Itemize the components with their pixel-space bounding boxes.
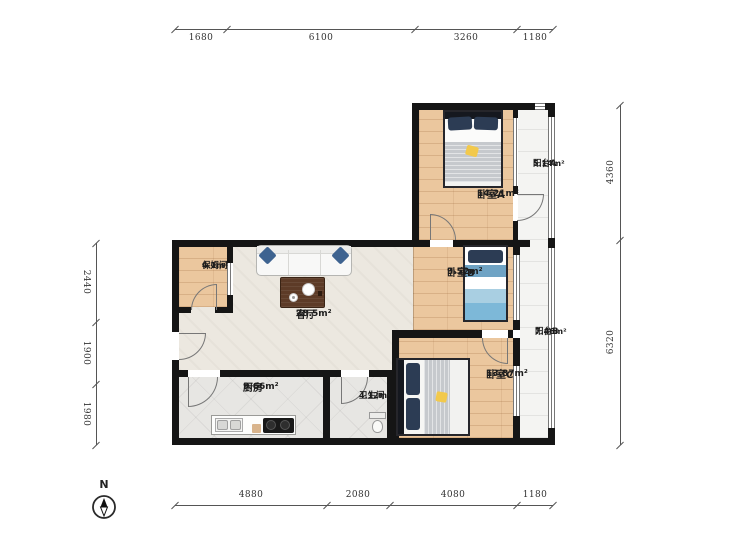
room-area: 9.66m²	[243, 382, 279, 394]
room-area: 7.46m²	[535, 327, 567, 337]
bed-pillow	[406, 398, 420, 430]
wall	[513, 221, 518, 240]
wall	[513, 338, 520, 366]
bed-blanket-stripe	[465, 289, 506, 303]
balcony-b-floor	[520, 240, 548, 438]
wall	[172, 438, 555, 445]
wall	[172, 360, 179, 445]
table-plate-dot	[292, 296, 295, 299]
wall	[220, 370, 330, 377]
floor-edge	[413, 247, 414, 330]
sofa	[256, 245, 352, 276]
sink-basin	[230, 420, 241, 430]
toilet-bowl	[372, 420, 383, 433]
dimension-line-right	[620, 105, 621, 445]
bed-sheet	[445, 182, 501, 186]
dimension-line-bottom	[175, 505, 553, 506]
dim-label: 1680	[189, 33, 214, 43]
wall	[508, 330, 513, 338]
compass-icon	[91, 494, 117, 520]
wall	[392, 330, 482, 338]
window	[548, 117, 555, 238]
sofa-seam	[320, 250, 321, 275]
room-area: 4.1m²	[202, 261, 228, 271]
wall	[412, 103, 419, 247]
window	[513, 118, 518, 186]
room-area: 4.12m²	[359, 391, 391, 401]
toilet-tank	[369, 412, 386, 419]
bed	[443, 110, 503, 188]
sofa-seam	[288, 250, 289, 275]
dim-label: 4360	[606, 160, 616, 185]
bed-blanket-stripe	[465, 303, 506, 320]
wall	[513, 416, 520, 438]
sink-basin	[217, 420, 228, 430]
dimension-line-left	[96, 243, 97, 445]
wall	[419, 240, 430, 247]
wall	[179, 307, 191, 313]
bed-pillow	[448, 116, 473, 130]
balcony-a-floor	[518, 110, 548, 240]
room-area: 14.21m²	[477, 189, 519, 201]
dim-label: 1180	[523, 490, 548, 500]
bed	[463, 245, 508, 322]
dim-label: 1900	[81, 341, 91, 366]
dimension-line-top	[175, 29, 553, 30]
table-plate	[302, 283, 315, 296]
wall	[179, 370, 188, 377]
dim-label: 4880	[239, 490, 264, 500]
window	[535, 103, 545, 110]
wall	[215, 307, 233, 313]
dim-label: 1180	[523, 33, 548, 43]
bedroom-a-door-leaf	[430, 214, 431, 240]
stove-burner	[266, 420, 276, 430]
room-area: 13.87m²	[486, 369, 528, 381]
room-area: 9.52m²	[447, 267, 483, 279]
dim-label: 2080	[346, 490, 371, 500]
wall	[172, 240, 179, 332]
bed-pillow	[474, 117, 498, 131]
wall	[369, 370, 394, 377]
room-area: 5.14m²	[533, 159, 565, 169]
bed-sheet	[450, 360, 468, 434]
kitchen-counter	[211, 415, 296, 435]
wall	[513, 247, 520, 255]
dim-label: 6100	[309, 33, 334, 43]
bedroom-c-door-leaf	[507, 338, 508, 364]
coffee-table	[280, 277, 325, 308]
bed-cushion	[435, 391, 448, 403]
wall	[330, 370, 341, 377]
dim-label: 3260	[454, 33, 479, 43]
bed-pillow	[406, 363, 420, 395]
dim-label: 4080	[441, 490, 466, 500]
dim-label: 2440	[81, 270, 91, 295]
window	[513, 255, 520, 320]
balcony-a-door-leaf	[517, 194, 544, 195]
nanny-door-leaf	[216, 284, 217, 310]
wall	[548, 238, 555, 248]
stove	[263, 418, 294, 433]
room-area: 28.5m²	[296, 309, 332, 321]
bed-pillow	[468, 250, 503, 263]
wall	[412, 103, 555, 110]
table-knob	[318, 291, 322, 296]
bed-headboard	[398, 360, 404, 434]
dim-label: 6320	[606, 330, 616, 355]
cutting-board	[252, 424, 261, 433]
entrance-door-leaf	[179, 333, 206, 334]
dim-label: 1980	[81, 402, 91, 427]
table-plate	[289, 293, 298, 302]
compass-north-label: N	[99, 478, 108, 491]
bed	[396, 358, 470, 436]
kitchen-sink	[215, 418, 243, 432]
kitchen-door-leaf	[188, 377, 189, 407]
wall	[548, 103, 555, 117]
wall	[513, 110, 518, 118]
wall	[517, 240, 530, 247]
stove-burner	[280, 420, 290, 430]
floor-plan: 客厅 28.5m² 保姆间 4.1m² 厨房 9.66m² 卫生间 4.12m²…	[0, 0, 729, 547]
wall	[323, 377, 330, 438]
bathroom-door-leaf	[341, 377, 342, 404]
wall	[513, 320, 520, 330]
